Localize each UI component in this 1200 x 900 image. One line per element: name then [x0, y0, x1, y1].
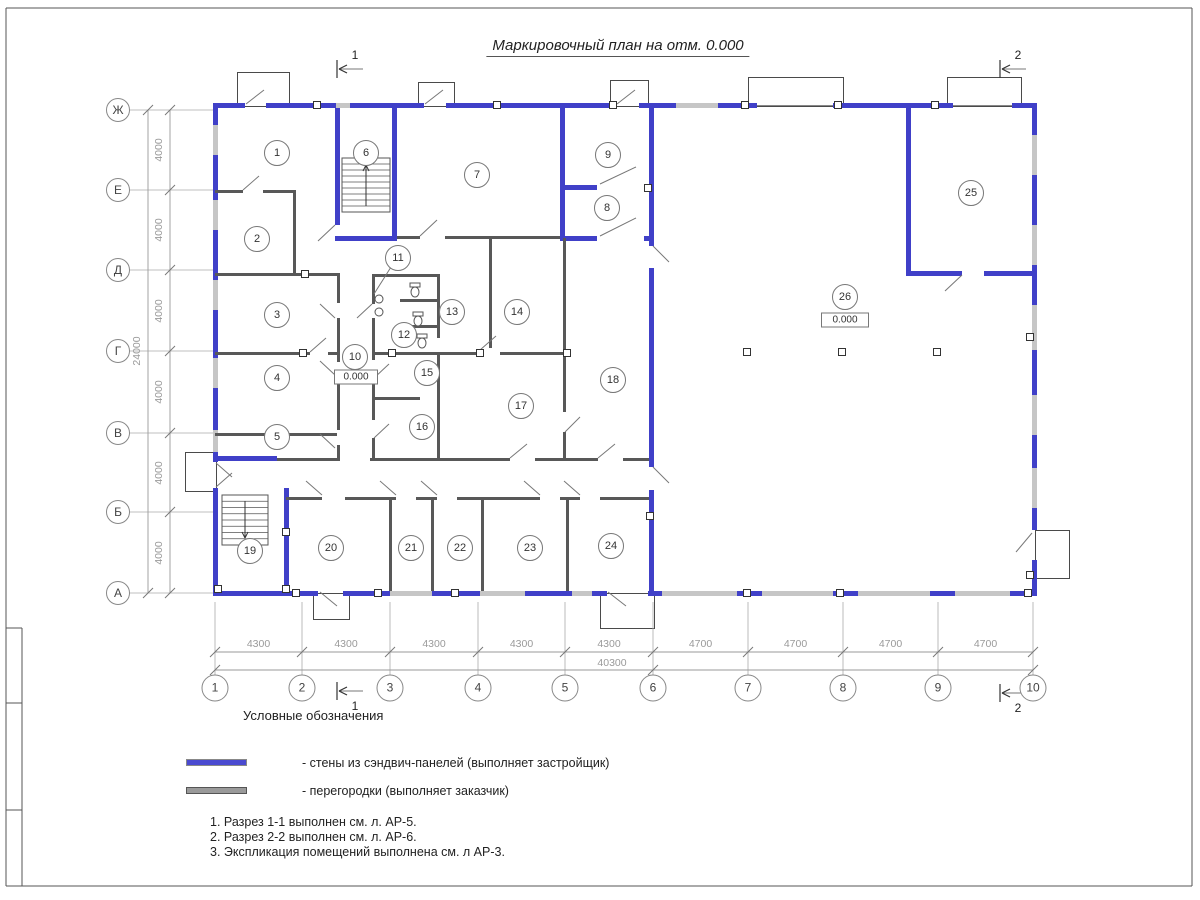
door-leaf-line [320, 304, 335, 318]
section-mark-label: 2 [1015, 701, 1022, 715]
room-number-badge: 1 [264, 140, 290, 166]
note-line: 3. Экспликация помещений выполнена см. л… [210, 845, 505, 860]
section-mark-label: 2 [1015, 48, 1022, 62]
door-leaf-line [565, 417, 580, 432]
window-segment [1032, 305, 1037, 350]
dimension-label: 4000 [153, 138, 165, 161]
sandwich-wall-segment [906, 108, 911, 273]
sandwich-wall-segment [718, 103, 757, 108]
room-number-badge: 25 [958, 180, 984, 206]
dimension-tick [165, 105, 175, 115]
sandwich-wall-segment [213, 388, 218, 430]
partition-segment [563, 432, 566, 458]
sandwich-wall-segment [649, 108, 654, 246]
dimension-tick [1028, 647, 1038, 657]
elevation-mark: 0.000 [334, 370, 378, 385]
column-anchor [609, 101, 617, 109]
section-mark-label: 1 [352, 48, 359, 62]
partition-segment [500, 352, 568, 355]
door-leaf-line [310, 338, 326, 352]
dimension-tick [165, 588, 175, 598]
sandwich-wall-segment [266, 103, 336, 108]
axis-marker-row: Г [106, 339, 130, 363]
window-segment [213, 125, 218, 155]
door-leaf-line [374, 424, 389, 438]
room-number-badge: 19 [237, 538, 263, 564]
column-anchor [282, 585, 290, 593]
dimension-tick [210, 647, 220, 657]
sandwich-wall-segment [215, 103, 245, 108]
sandwich-wall-segment [215, 591, 318, 596]
partition-segment [481, 497, 484, 591]
sandwich-wall-segment [284, 488, 289, 591]
sandwich-wall-segment [1032, 265, 1037, 305]
room-number-badge: 22 [447, 535, 473, 561]
toilet-icon [410, 283, 420, 287]
section-arrow-icon [1002, 693, 1010, 697]
column-anchor [836, 589, 844, 597]
section-arrow-icon [339, 687, 347, 691]
sandwich-wall-segment [392, 108, 397, 236]
axis-marker-row: А [106, 581, 130, 605]
column-anchor [834, 101, 842, 109]
partition-segment [489, 238, 492, 348]
partition-segment [445, 236, 560, 239]
axis-marker-col: 10 [1020, 675, 1047, 702]
dimension-label: 4000 [153, 541, 165, 564]
door-leaf-line [216, 473, 232, 487]
room-number-badge: 18 [600, 367, 626, 393]
toilet-icon [411, 287, 419, 297]
stairs-outline [222, 495, 268, 545]
column-anchor [646, 512, 654, 520]
axis-marker-col: 3 [377, 675, 404, 702]
section-arrow-icon [1002, 69, 1010, 73]
room-number-badge: 26 [832, 284, 858, 310]
room-number-badge: 11 [385, 245, 411, 271]
partition-segment [389, 497, 392, 591]
room-number-badge: 4 [264, 365, 290, 391]
dimension-label: 4700 [879, 638, 902, 650]
partition-segment [263, 190, 295, 193]
dimension-tick [933, 647, 943, 657]
window-segment [955, 591, 1010, 596]
sandwich-wall-segment [648, 591, 662, 596]
room-number-badge: 5 [264, 424, 290, 450]
room-number-badge: 17 [508, 393, 534, 419]
column-anchor [451, 589, 459, 597]
door-leaf-line [524, 481, 540, 495]
door-leaf-line [320, 361, 335, 375]
column-anchor [299, 349, 307, 357]
entrance-canopy [237, 72, 290, 107]
column-anchor [931, 101, 939, 109]
toilet-icon [418, 338, 426, 348]
sandwich-wall-segment [213, 310, 218, 358]
note-line: 2. Разрез 2-2 выполнен см. л. АР-6. [210, 830, 505, 845]
entrance-canopy [1035, 530, 1070, 579]
dimension-label: 4700 [689, 638, 712, 650]
window-segment [1032, 395, 1037, 435]
window-segment [1032, 225, 1037, 265]
partition-segment [535, 458, 598, 461]
section-arrow-icon [339, 65, 347, 69]
sandwich-wall-segment [213, 488, 218, 596]
dimension-label: 4000 [153, 299, 165, 322]
window-segment [662, 591, 737, 596]
section-arrow-icon [339, 69, 347, 73]
column-anchor [292, 589, 300, 597]
axis-marker-row: Д [106, 258, 130, 282]
door-leaf-line [510, 444, 527, 458]
door-leaf-line [243, 176, 259, 190]
dimension-label: 4700 [784, 638, 807, 650]
sandwich-wall-segment [560, 108, 565, 236]
dimension-label: 4300 [247, 638, 270, 650]
room-number-badge: 6 [353, 140, 379, 166]
toilet-icon [413, 312, 423, 316]
axis-marker-row: Ж [106, 98, 130, 122]
partition-segment [215, 190, 243, 193]
column-anchor [388, 349, 396, 357]
sandwich-wall-segment [592, 591, 607, 596]
column-anchor [741, 101, 749, 109]
partition-segment [215, 352, 310, 355]
elevation-mark: 0.000 [821, 313, 869, 328]
dimension-tick [165, 185, 175, 195]
stairs-arrow-head [242, 532, 245, 538]
legend-item-partitions: - перегородки (выполняет заказчик) [186, 782, 509, 800]
stairs-outline [342, 158, 390, 212]
partition-segment [457, 497, 540, 500]
window-segment [572, 591, 592, 596]
window-segment [213, 358, 218, 388]
partition-segment [563, 238, 566, 412]
column-anchor [493, 101, 501, 109]
legend-heading: Условные обозначения [243, 708, 383, 723]
section-arrow-icon [1002, 689, 1010, 693]
drawing-sheet: Маркировочный план на отм. 0.000 Условны… [0, 0, 1200, 900]
dimension-label: 4300 [510, 638, 533, 650]
partition-segment [215, 273, 337, 276]
door-leaf-line [318, 225, 335, 241]
axis-marker-col: 8 [830, 675, 857, 702]
window-segment [390, 591, 432, 596]
axis-marker-col: 2 [289, 675, 316, 702]
partition-segment [337, 318, 340, 362]
partition-segment [372, 438, 375, 458]
axis-marker-row: Е [106, 178, 130, 202]
door-leaf-line [380, 481, 396, 495]
door-leaf-line [421, 481, 437, 495]
dimension-label: 4300 [334, 638, 357, 650]
entrance-canopy [600, 593, 655, 629]
column-anchor [1024, 589, 1032, 597]
partition-segment [286, 497, 322, 500]
sandwich-wall-swatch [186, 759, 247, 766]
axis-marker-col: 6 [640, 675, 667, 702]
window-segment [213, 200, 218, 230]
note-line: 1. Разрез 1-1 выполнен см. л. АР-5. [210, 815, 505, 830]
sandwich-wall-segment [446, 103, 616, 108]
sandwich-wall-segment [335, 108, 340, 225]
partition-swatch [186, 787, 247, 794]
partition-segment [397, 236, 420, 239]
column-anchor [214, 585, 222, 593]
window-segment [762, 591, 833, 596]
partition-segment [370, 458, 510, 461]
window-segment [480, 591, 525, 596]
notes: 1. Разрез 1-1 выполнен см. л. АР-5. 2. Р… [210, 815, 505, 860]
dimension-tick [165, 507, 175, 517]
column-anchor [301, 270, 309, 278]
toilet-icon [417, 334, 427, 338]
sandwich-wall-segment [639, 103, 676, 108]
section-mark-label: 1 [352, 699, 359, 713]
dimension-tick [165, 428, 175, 438]
axis-marker-col: 7 [735, 675, 762, 702]
door-leaf-line [598, 444, 615, 458]
partition-segment [560, 497, 580, 500]
column-anchor [374, 589, 382, 597]
axis-marker-col: 4 [465, 675, 492, 702]
legend-item-sandwich-walls: - стены из сэндвич-панелей (выполняет за… [186, 754, 609, 772]
sandwich-wall-segment [1032, 508, 1037, 530]
sandwich-wall-segment [335, 236, 397, 241]
dimension-tick [838, 647, 848, 657]
door-leaf-line [653, 246, 669, 262]
sandwich-wall-segment [906, 271, 962, 276]
door-leaf-line [653, 467, 669, 483]
sandwich-wall-segment [930, 591, 955, 596]
sandwich-wall-segment [649, 490, 654, 591]
sandwich-wall-segment [560, 185, 597, 190]
room-number-badge: 3 [264, 302, 290, 328]
partition-segment [431, 497, 434, 591]
entrance-canopy [313, 593, 350, 620]
legend-item-label: - перегородки (выполняет заказчик) [302, 784, 509, 798]
dimension-tick [1028, 665, 1038, 675]
axis-marker-row: В [106, 421, 130, 445]
column-anchor [644, 184, 652, 192]
entrance-canopy [947, 77, 1022, 107]
door-leaf-line [600, 167, 636, 184]
room-number-badge: 14 [504, 299, 530, 325]
sandwich-wall-segment [1032, 435, 1037, 468]
partition-segment [623, 458, 649, 461]
dimension-label: 4700 [974, 638, 997, 650]
door-leaf-line [320, 434, 335, 448]
dimension-label: 4000 [153, 380, 165, 403]
column-anchor [1026, 333, 1034, 341]
door-leaf-line [357, 304, 372, 318]
door-leaf-line [1016, 533, 1032, 552]
sandwich-wall-segment [213, 155, 218, 200]
sandwich-wall-segment [213, 456, 277, 461]
window-segment [676, 103, 718, 108]
room-number-badge: 15 [414, 360, 440, 386]
partition-segment [372, 397, 420, 400]
door-leaf-line [480, 336, 496, 350]
partition-segment [328, 352, 337, 355]
window-segment [1032, 468, 1037, 508]
room-number-badge: 21 [398, 535, 424, 561]
partition-segment [600, 497, 649, 500]
window-segment [1032, 135, 1037, 175]
door-leaf-line [306, 481, 322, 495]
partition-segment [277, 458, 340, 461]
partition-segment [400, 299, 437, 302]
dimension-tick [648, 665, 658, 675]
partition-segment [293, 190, 296, 273]
axis-marker-col: 9 [925, 675, 952, 702]
door-leaf-line [216, 463, 232, 477]
door-leaf-line [420, 220, 437, 236]
dimension-tick [297, 647, 307, 657]
axis-marker-col: 1 [202, 675, 229, 702]
dimension-tick [143, 588, 153, 598]
sandwich-wall-segment [525, 591, 572, 596]
door-leaf-line [374, 267, 391, 294]
dimension-tick [165, 346, 175, 356]
dimension-label: 4000 [153, 461, 165, 484]
dimension-tick [210, 665, 220, 675]
partition-segment [566, 497, 569, 591]
column-anchor [563, 349, 571, 357]
room-number-badge: 13 [439, 299, 465, 325]
partition-segment [337, 273, 340, 303]
partition-segment [372, 274, 375, 304]
partition-segment [337, 377, 340, 430]
sandwich-wall-segment [984, 271, 1032, 276]
room-number-badge: 9 [595, 142, 621, 168]
sandwich-wall-segment [1032, 175, 1037, 225]
column-anchor [1026, 571, 1034, 579]
section-arrow-icon [339, 691, 347, 695]
window-segment [858, 591, 930, 596]
sandwich-wall-segment [343, 591, 390, 596]
plan-title: Маркировочный план на отм. 0.000 [486, 37, 749, 57]
room-number-badge: 16 [409, 414, 435, 440]
sandwich-wall-segment [649, 268, 654, 467]
dimension-tick [165, 265, 175, 275]
column-anchor [313, 101, 321, 109]
entrance-canopy [748, 77, 844, 107]
dimension-total-label: 24000 [131, 336, 143, 365]
column-anchor [476, 349, 484, 357]
dimension-tick [648, 647, 658, 657]
partition-segment [337, 445, 340, 458]
room-number-badge: 20 [318, 535, 344, 561]
column-anchor [743, 589, 751, 597]
sink-icon [375, 308, 383, 316]
column-anchor [282, 528, 290, 536]
sink-icon [375, 295, 383, 303]
column-anchor [838, 348, 846, 356]
room-number-badge: 23 [517, 535, 543, 561]
room-number-badge: 24 [598, 533, 624, 559]
sandwich-wall-segment [1032, 103, 1037, 135]
room-number-badge: 10 [342, 344, 368, 370]
axis-marker-col: 5 [552, 675, 579, 702]
dimension-tick [473, 647, 483, 657]
window-segment [213, 280, 218, 310]
dimension-tick [143, 105, 153, 115]
door-leaf-line [564, 481, 580, 495]
dimension-label: 4300 [422, 638, 445, 650]
sandwich-wall-segment [350, 103, 424, 108]
sandwich-wall-segment [1032, 350, 1037, 395]
dimension-label: 4000 [153, 218, 165, 241]
dimension-total-label: 40300 [597, 657, 626, 669]
room-number-badge: 7 [464, 162, 490, 188]
axis-marker-row: Б [106, 500, 130, 524]
door-leaf-line [945, 275, 962, 291]
column-anchor [933, 348, 941, 356]
section-arrow-icon [1002, 65, 1010, 69]
sandwich-wall-segment [644, 236, 654, 241]
legend-item-label: - стены из сэндвич-панелей (выполняет за… [302, 756, 609, 770]
room-number-badge: 2 [244, 226, 270, 252]
dimension-tick [560, 647, 570, 657]
column-anchor [743, 348, 751, 356]
partition-segment [372, 274, 437, 277]
room-number-badge: 12 [391, 322, 417, 348]
dimension-tick [743, 647, 753, 657]
dimension-label: 4300 [597, 638, 620, 650]
sandwich-wall-segment [213, 103, 218, 125]
room-number-badge: 8 [594, 195, 620, 221]
dimension-tick [385, 647, 395, 657]
